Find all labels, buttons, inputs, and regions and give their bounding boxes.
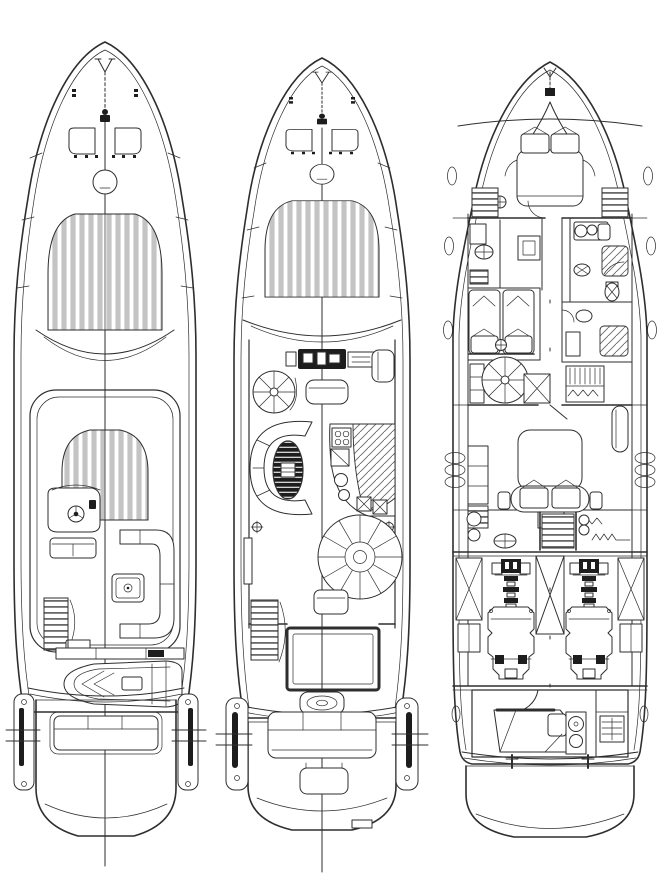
galley <box>330 424 395 516</box>
sink-icon <box>335 474 348 487</box>
yacht-deck-plans-page <box>0 0 667 889</box>
wardrobe <box>566 366 604 402</box>
cocktail-table <box>112 574 144 602</box>
passerelle-beam <box>56 640 184 659</box>
master-sofa <box>612 406 628 452</box>
helm-console-with-wheel <box>48 485 100 532</box>
main-deck-plan <box>216 58 428 872</box>
engine-hatch <box>300 692 344 714</box>
bow-anchor-and-sunpad <box>265 72 379 297</box>
spiral-staircase <box>253 371 297 413</box>
dining-bench <box>314 590 348 614</box>
master-double-bed <box>518 430 582 490</box>
cockpit-sunpad <box>287 628 379 690</box>
platform-fitting <box>352 820 372 828</box>
crew-sink-icon <box>569 717 584 732</box>
aft-bench <box>268 712 376 758</box>
vip-double-bed <box>517 150 583 206</box>
hanging-locker <box>472 188 498 218</box>
side-door <box>372 350 394 382</box>
engine-room <box>456 556 644 679</box>
companionway-steps <box>542 514 574 548</box>
round-dining-table <box>318 515 402 599</box>
helm-seat <box>306 380 348 404</box>
vip-cabin <box>472 127 628 218</box>
starboard-engine <box>566 559 612 679</box>
pillow <box>551 134 579 153</box>
bow-detail <box>458 68 642 148</box>
bow-anchor-and-sunpad <box>48 59 162 330</box>
swim-platform <box>28 688 184 836</box>
helm-station <box>286 349 374 369</box>
twin-guest-cabin <box>468 288 540 360</box>
aft-bench <box>50 712 162 754</box>
platform-hatch <box>300 763 348 794</box>
oval-cocktail-table <box>273 441 303 499</box>
lobby-cabinet <box>518 236 540 260</box>
windlass-icon <box>545 88 555 96</box>
deck-plans-canvas <box>0 0 667 889</box>
lower-deck-plan <box>444 62 657 837</box>
guest-bathroom <box>574 222 628 301</box>
dresser <box>468 446 488 504</box>
utility-row <box>467 512 630 550</box>
pillow <box>521 134 549 153</box>
hanging-locker <box>602 188 628 218</box>
crew-cabin <box>472 690 628 757</box>
helm-bench-seat <box>50 538 96 558</box>
port-engine <box>488 559 534 679</box>
flybridge-deck-plan <box>6 42 206 866</box>
cockpit-stairs <box>251 600 285 662</box>
sink-icon <box>575 225 587 237</box>
